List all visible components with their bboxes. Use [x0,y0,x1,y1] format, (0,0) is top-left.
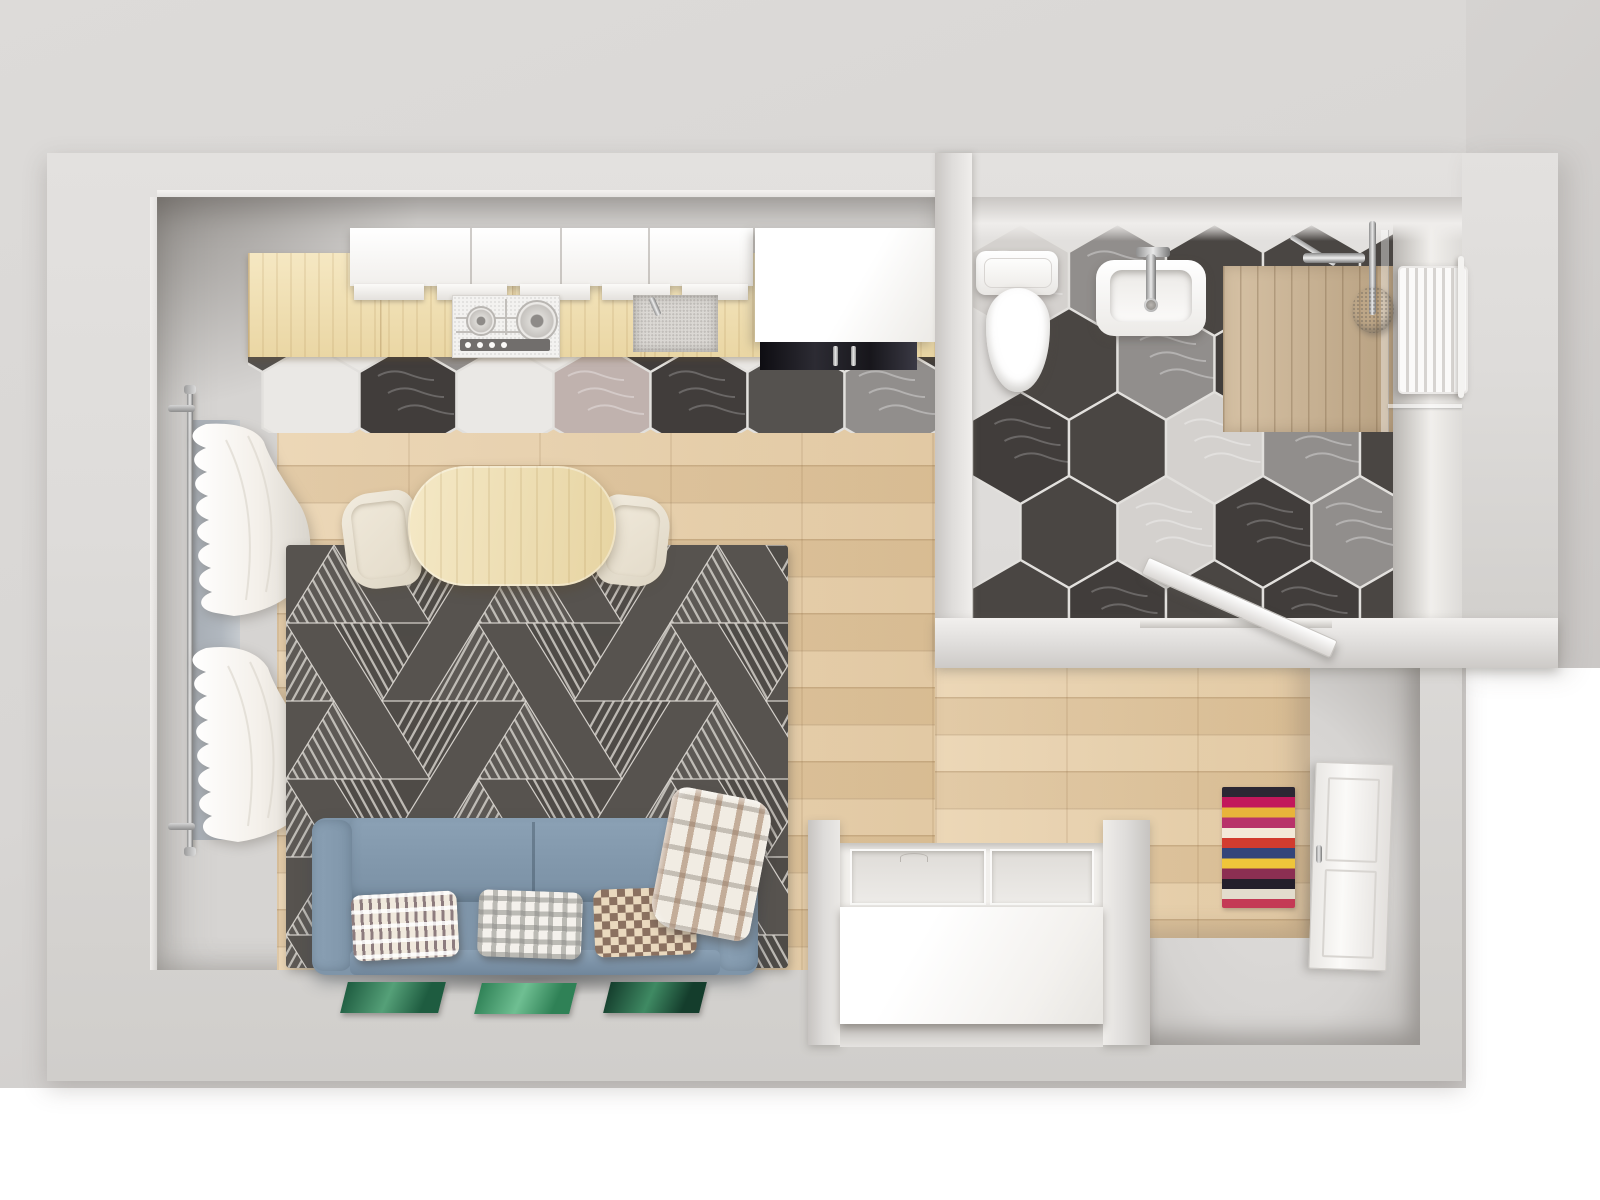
wardrobe-open-top [840,843,1103,907]
kitchen-sink [633,295,718,352]
sink-faucet-spout [1146,254,1156,304]
burner-small [466,306,496,336]
niche-wall-left [808,820,840,1045]
hall-runner-rug [1222,787,1295,908]
shower-mixer-bar [1303,253,1365,263]
rod-bracket [168,405,195,412]
chair-seat [350,499,413,581]
radiator-rail [1458,256,1464,398]
door-panel [1322,869,1377,959]
appliance-handle [851,346,856,366]
canvas-2 [474,983,577,1014]
bathroom-slab-extension [1462,153,1558,668]
hanger-icon [900,853,928,862]
shower-glass-panel [1381,230,1389,432]
rod-finial [184,847,196,856]
rod-finial [184,385,196,394]
canvas-1 [340,982,446,1013]
wardrobe-unit [840,907,1103,1024]
pebble-mat [1352,287,1394,333]
hob-knob [465,342,471,348]
hob-knob [477,342,483,348]
cabinet-seam [560,228,562,284]
pillow-triangles [350,890,459,961]
toilet-tank-lid [984,258,1052,288]
dining-table [408,466,616,586]
hob-knob [501,342,507,348]
upper-cabinets [350,228,753,286]
cabinet-seam [648,228,650,284]
sink-drain [1146,300,1156,310]
tall-cabinet [755,228,935,342]
floor-plan-render [0,0,1600,1200]
hob-knob [489,342,495,348]
appliance-handle [833,346,838,366]
kitchen-bathroom-wall [935,153,972,660]
shelf-lip [354,284,424,300]
pillow-gingham [477,889,583,960]
shower-glass-return [1388,404,1462,408]
black-appliance [760,342,917,370]
wardrobe-compartment [990,849,1094,905]
burner-large [516,300,558,342]
entry-door-handle [1316,845,1322,863]
canvas-3 [603,982,707,1013]
sofa-back-seam [532,822,535,900]
niche-floor [840,1020,1103,1047]
door-panel [1325,777,1380,863]
niche-wall-right [1103,820,1150,1045]
sofa-armrest-left [312,820,352,971]
entry-door [1308,762,1393,972]
hob-grate [505,299,507,335]
wardrobe-compartment [850,849,986,905]
cabinet-seam [470,228,472,284]
